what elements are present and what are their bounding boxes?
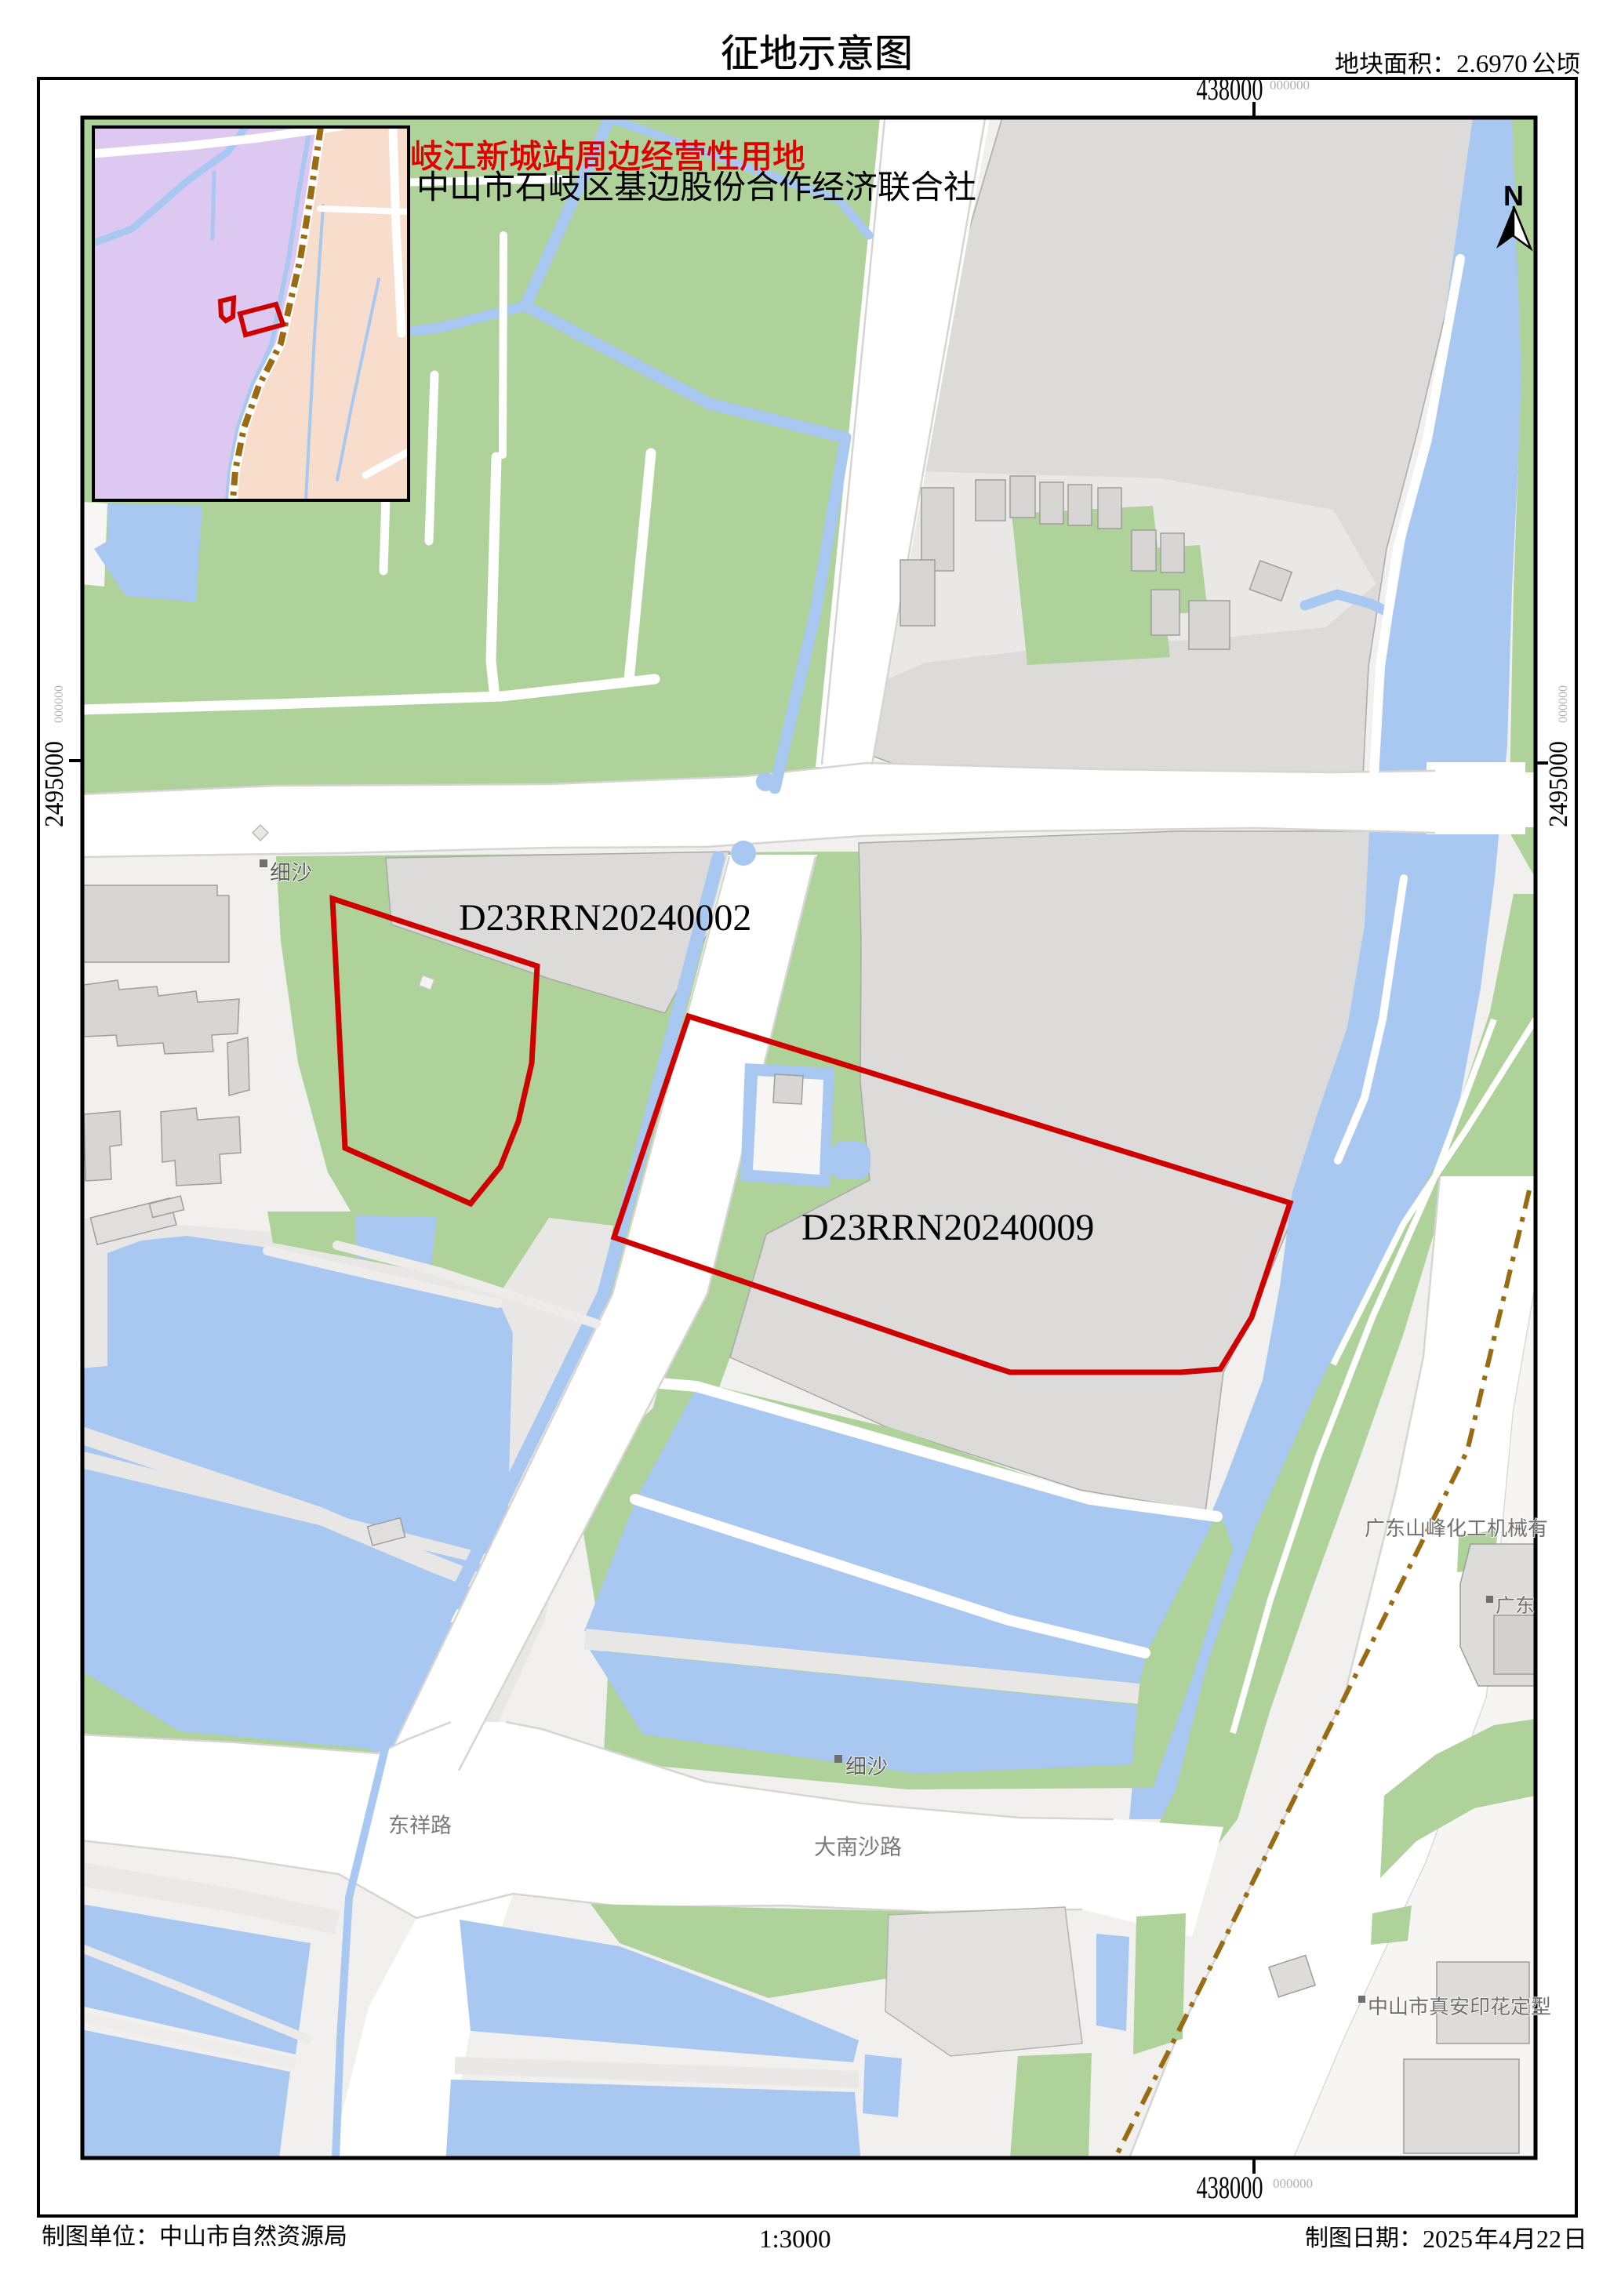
- svg-text:438000: 438000: [1197, 2170, 1263, 2205]
- svg-text:438000: 438000: [1197, 71, 1263, 107]
- svg-text:2495000: 2495000: [40, 741, 69, 827]
- svg-text:D23RRN20240002: D23RRN20240002: [459, 897, 751, 939]
- svg-text:1:3000: 1:3000: [759, 2225, 831, 2254]
- svg-text:4: 4: [1499, 2225, 1511, 2253]
- svg-text:2495000: 2495000: [1544, 741, 1573, 827]
- svg-text:D23RRN20240009: D23RRN20240009: [801, 1207, 1094, 1248]
- svg-text:22: 22: [1536, 2225, 1561, 2253]
- svg-text:2025: 2025: [1423, 2225, 1473, 2253]
- svg-text:000000: 000000: [1270, 78, 1310, 93]
- svg-text:000000: 000000: [1273, 2176, 1313, 2191]
- svg-text:000000: 000000: [1557, 685, 1570, 723]
- svg-text:2.6970: 2.6970: [1456, 50, 1528, 78]
- svg-text:000000: 000000: [53, 685, 66, 723]
